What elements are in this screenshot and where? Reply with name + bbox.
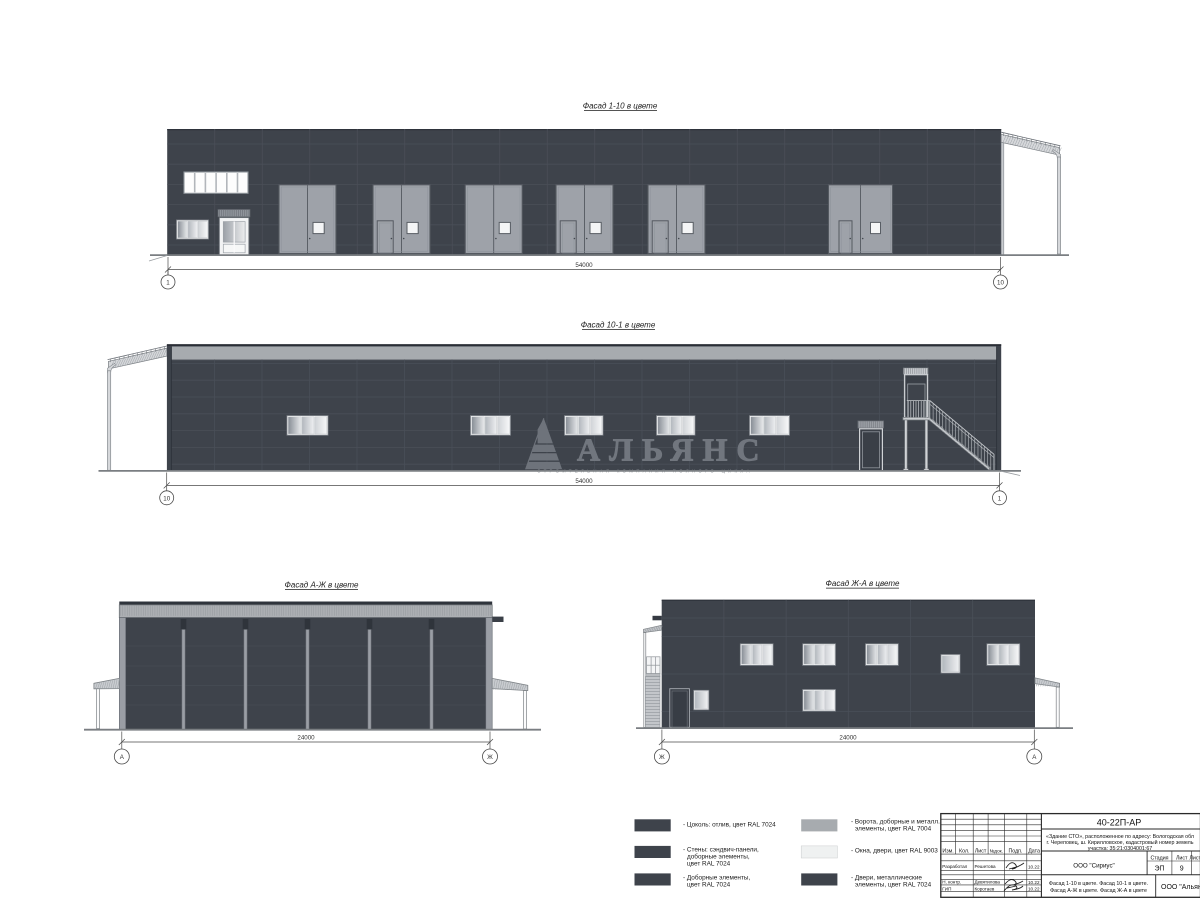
- svg-text:Решетова: Решетова: [975, 864, 997, 869]
- svg-text:Фасад А-Ж в цвете: Фасад А-Ж в цвете: [285, 581, 359, 590]
- svg-text:24000: 24000: [839, 735, 857, 742]
- svg-text:ГИП: ГИП: [942, 886, 951, 891]
- svg-text:- Доборные элементы,: - Доборные элементы,: [683, 874, 750, 882]
- svg-text:24000: 24000: [297, 735, 315, 742]
- svg-text:10.22: 10.22: [1028, 864, 1040, 869]
- svg-text:Подп.: Подп.: [1008, 849, 1022, 855]
- svg-text:цвет RAL 7024: цвет RAL 7024: [687, 861, 731, 868]
- svg-text:ЭП: ЭП: [1154, 866, 1164, 873]
- svg-text:Фасад 1-10 в цвете: Фасад 1-10 в цвете: [583, 102, 658, 111]
- svg-text:Стадия: Стадия: [1150, 855, 1168, 861]
- svg-text:Девятилова: Девятилова: [975, 880, 1001, 885]
- svg-text:г. Череповец, ш. Кирилловское,: г. Череповец, ш. Кирилловское, кадастров…: [1047, 839, 1194, 846]
- svg-text:40-22П-АР: 40-22П-АР: [1097, 817, 1142, 827]
- svg-text:Фасад 1-10 в цвете. Фасад 10-1: Фасад 1-10 в цвете. Фасад 10-1 в цвете.: [1049, 881, 1148, 887]
- svg-text:- Цоколь: отлив, цвет RAL 7024: - Цоколь: отлив, цвет RAL 7024: [683, 822, 776, 829]
- svg-text:10.22: 10.22: [1028, 880, 1040, 885]
- svg-text:Лист: Лист: [1176, 855, 1188, 861]
- svg-text:Фасад Ж-А в цвете: Фасад Ж-А в цвете: [826, 579, 900, 588]
- svg-text:Лист: Лист: [975, 849, 987, 855]
- svg-text:участка: 35:21:0304001:67: участка: 35:21:0304001:67: [1088, 846, 1153, 852]
- svg-text:доборные элементы,: доборные элементы,: [687, 853, 750, 861]
- svg-text:Коротаев: Коротаев: [975, 886, 995, 891]
- svg-text:54000: 54000: [575, 478, 593, 485]
- svg-text:Разработал: Разработал: [942, 864, 967, 869]
- svg-text:Н. контр.: Н. контр.: [942, 880, 961, 885]
- svg-text:ООО "Альянс": ООО "Альянс": [1161, 884, 1200, 891]
- svg-text:- Окна, двери, цвет RAL 9003: - Окна, двери, цвет RAL 9003: [851, 848, 938, 855]
- svg-text:Кол.: Кол.: [959, 849, 969, 855]
- svg-text:Ж: Ж: [659, 754, 665, 761]
- svg-text:- Ворота, доборные и металл.: - Ворота, доборные и металл.: [851, 818, 940, 826]
- svg-text:9: 9: [1180, 866, 1184, 873]
- svg-text:цвет RAL 7024: цвет RAL 7024: [687, 882, 731, 889]
- svg-text:- Стены: сэндвич-панели,: - Стены: сэндвич-панели,: [683, 847, 759, 854]
- svg-text:элементы, цвет RAL 7004: элементы, цвет RAL 7004: [855, 826, 932, 833]
- svg-text:Ж: Ж: [487, 754, 493, 761]
- svg-text:Фасад 10-1 в цвете: Фасад 10-1 в цвете: [581, 321, 656, 330]
- svg-text:Изм.: Изм.: [942, 849, 953, 855]
- svg-text:№док.: №док.: [989, 849, 1002, 854]
- svg-text:Листов: Листов: [1189, 855, 1200, 861]
- svg-text:ООО "Сириус": ООО "Сириус": [1073, 863, 1115, 870]
- svg-text:- Двери, металлические: - Двери, металлические: [851, 875, 922, 882]
- svg-text:элементы, цвет RAL 7024: элементы, цвет RAL 7024: [855, 882, 932, 889]
- svg-text:10: 10: [163, 495, 170, 502]
- svg-text:Дата: Дата: [1028, 849, 1040, 855]
- svg-text:АЛЬЯНС: АЛЬЯНС: [577, 432, 769, 468]
- svg-text:10.22: 10.22: [1028, 887, 1040, 892]
- svg-text:54000: 54000: [575, 262, 593, 269]
- svg-text:10: 10: [997, 280, 1004, 287]
- svg-text:Фасад А-Ж в цвете. Фасад Ж-А в: Фасад А-Ж в цвете. Фасад Ж-А в цвете: [1050, 888, 1147, 894]
- svg-text:1: 1: [998, 495, 1002, 502]
- svg-text:1: 1: [166, 280, 170, 287]
